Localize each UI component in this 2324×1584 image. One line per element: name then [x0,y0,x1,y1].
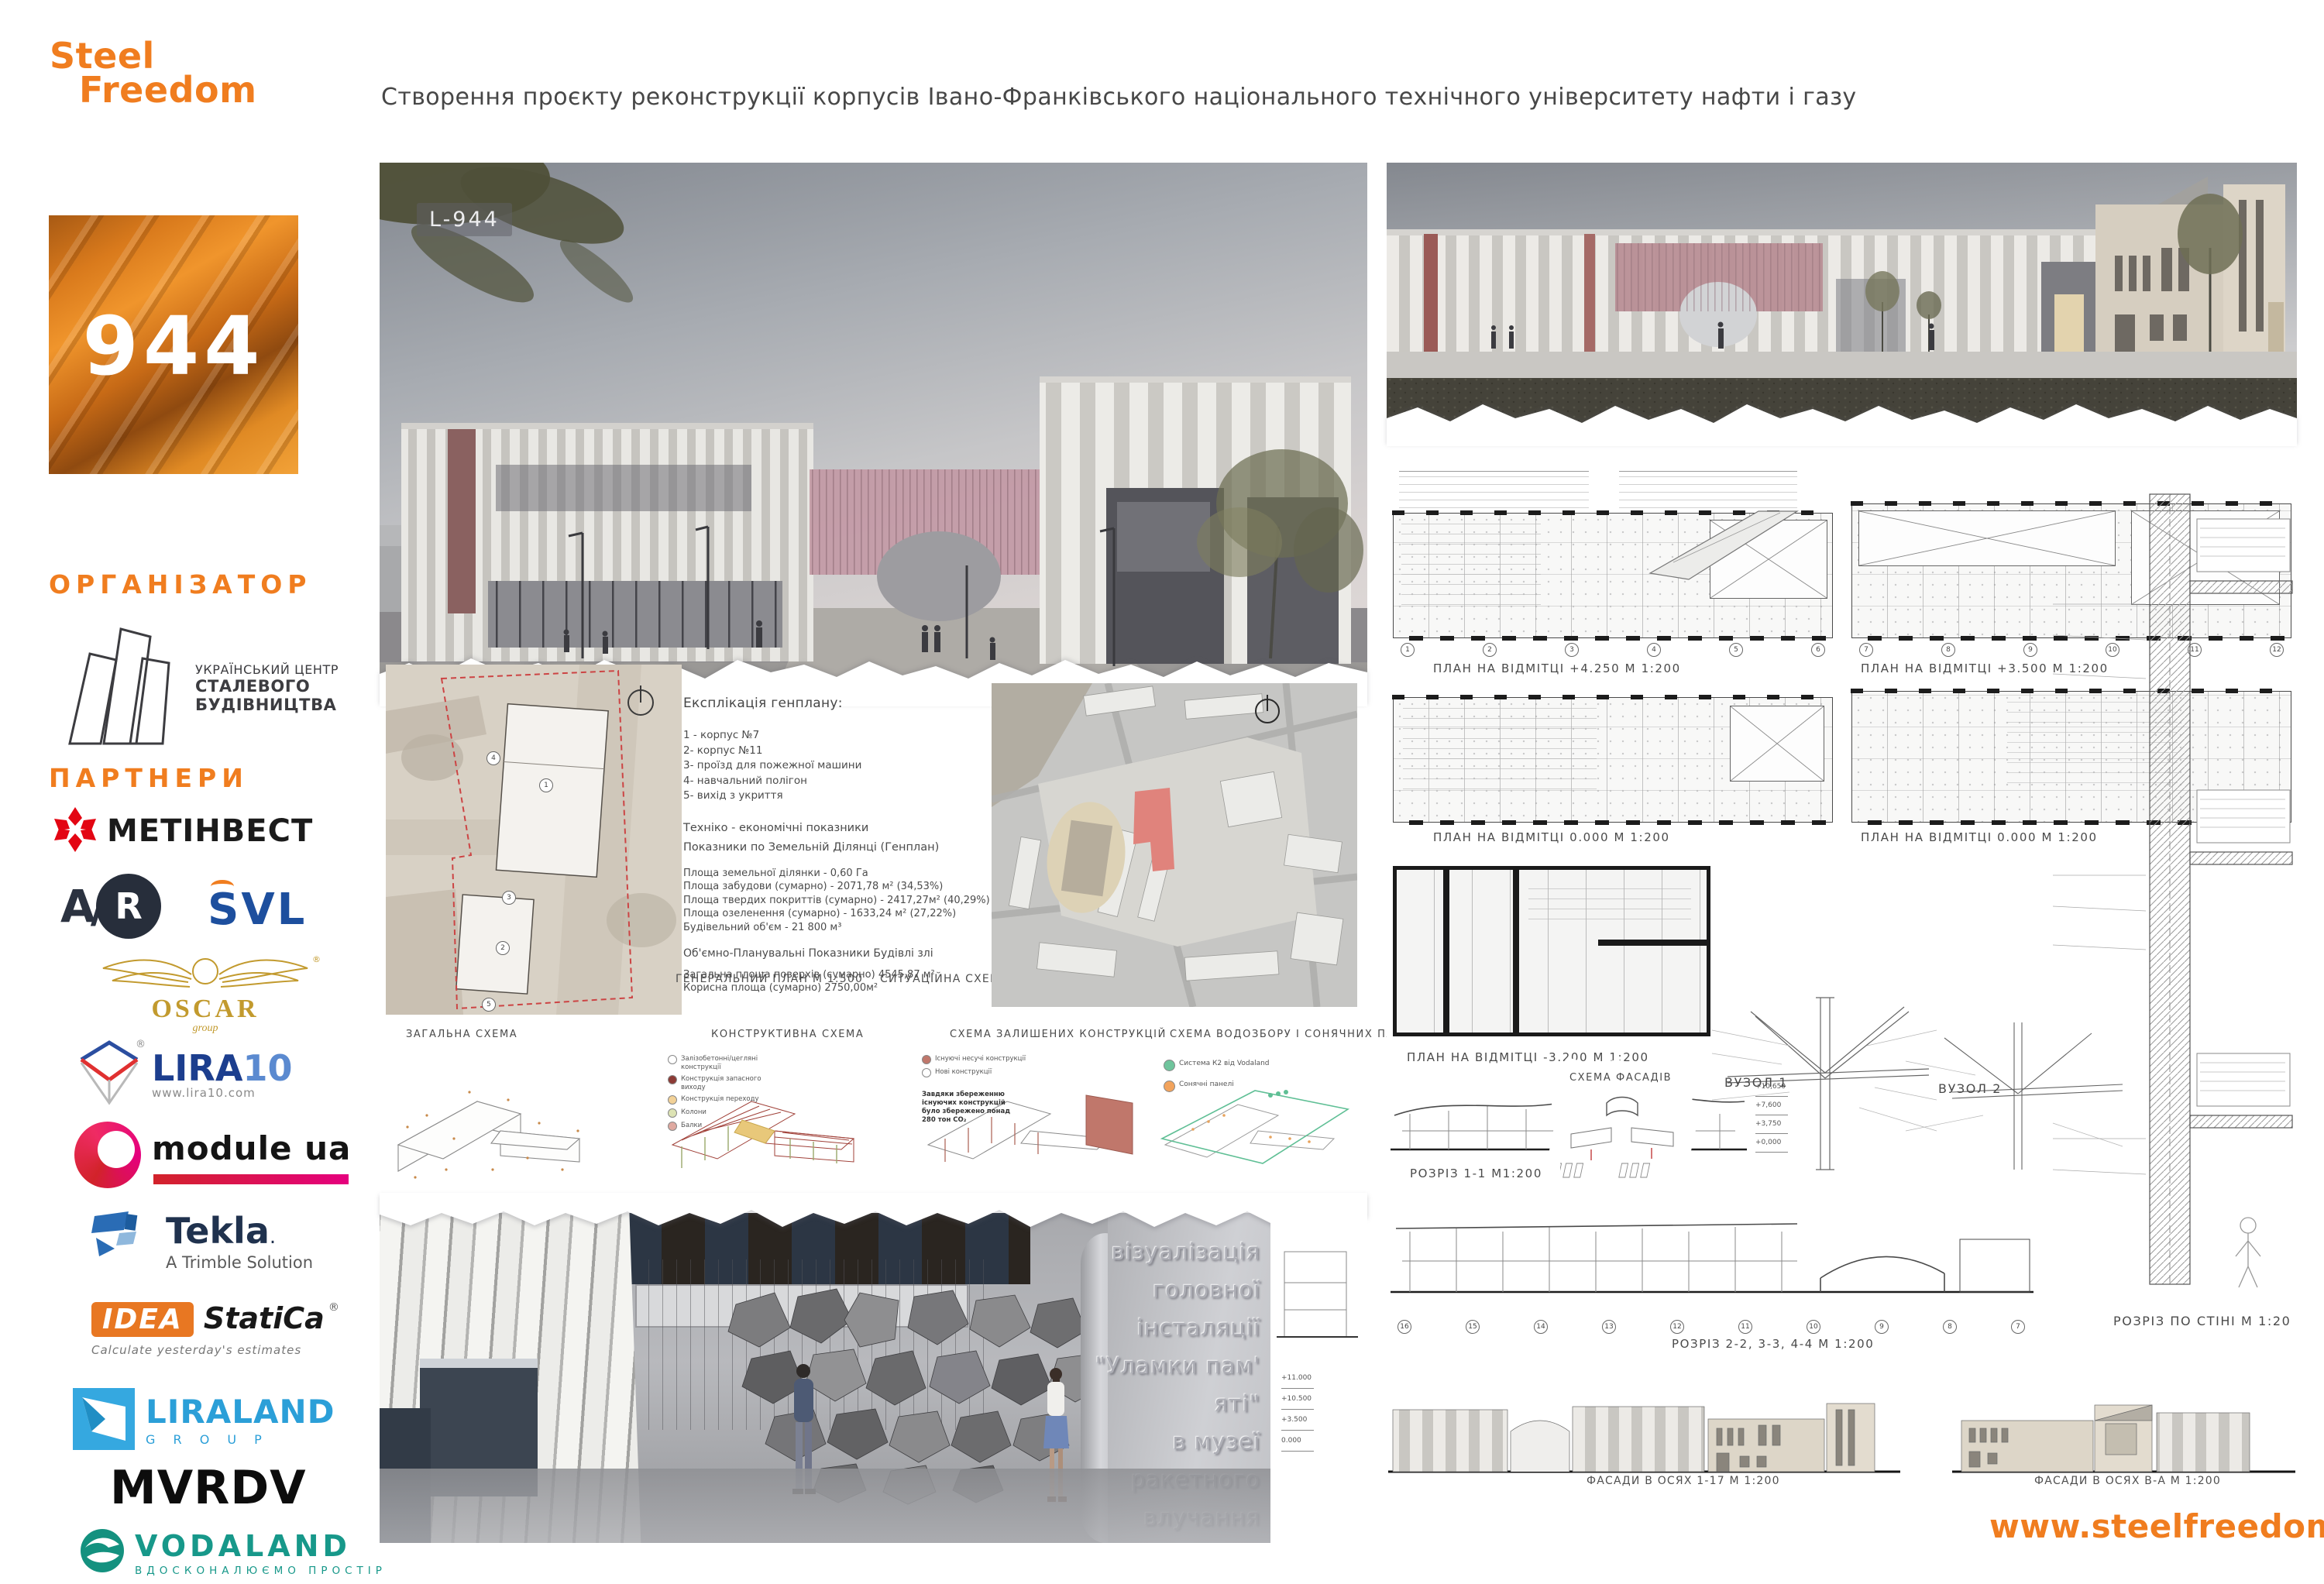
axis-bubble: 4 [1647,643,1661,657]
level-mark: +3.500 [1281,1410,1314,1431]
axis-bubble: 7 [1859,643,1873,657]
oscar-logo: ® OSCAR group [77,954,333,1036]
tekla-sub: A Trimble Solution [166,1253,313,1272]
logo-line-1: Steel [50,39,257,73]
side-strip: +11.000+10.500+3.5000.000 [1270,1213,1367,1543]
facade-1-17-drawing [1387,1393,1902,1484]
axes-row: 123456 [1401,643,1825,657]
vodaland-sub: ВДОСКОНАЛЮЄМО ПРОСТІР [135,1565,387,1577]
co2-note: Завдяки збереженню існуючих конструкцій … [922,1091,1023,1125]
tech-heading: Техніко - економічні показники [683,821,997,837]
display-glass [420,1359,538,1368]
facade-scheme-label: СХЕМА ФАСАДІВ [1569,1072,1672,1084]
liraland-text: LIRALAND [146,1393,335,1431]
mvrdv-logo: MVRDV [110,1461,307,1515]
floor-plan-0000-left [1393,697,1833,823]
avr-logo: A / R [60,874,161,939]
side-section-sketch [1277,1236,1362,1352]
organizer-name-line1: УКРАЇНСЬКИЙ ЦЕНТР [195,662,339,677]
genplan-label: ГЕНЕРАЛЬНИЙ ПЛАН М 1:500 [676,973,863,985]
axis-bubble: 11 [1738,1320,1752,1334]
tech-sub: Показники по Земельній Ділянці (Генплан) [683,840,997,856]
exterior-render: L-944 [380,163,1367,705]
genplan-drawing [386,665,682,1015]
plan-label: ПЛАН НА ВІДМІТЦІ +4.250 М 1:200 [1433,661,1681,675]
axis-bubble: 6 [1811,643,1825,657]
moduleua-text: module ua [152,1129,351,1167]
legend-dot [668,1095,677,1105]
wall-section-label: РОЗРІЗ ПО СТІНІ М 1:20 [2113,1314,2291,1328]
axes-row-section: 16151413121110987 [1397,1320,2025,1334]
section-234-drawing [1387,1193,2037,1317]
tech-metric: Площа твердих покриттів (сумарно) - 2417… [683,894,997,908]
legend-dot [1164,1081,1175,1092]
explication-items: 1 - корпус №72- корпус №113- проїзд для … [683,728,997,804]
scheme1-drawing [384,1046,617,1201]
page-title: Створення проєкту реконструкції корпусів… [381,84,2256,111]
legend-label: Балки [681,1122,702,1130]
legend-constructive: Залізобетонні/цегляні конструкціїКонстру… [668,1055,784,1135]
avr-letter-r: R [96,874,161,939]
moduleua-bar [153,1174,349,1184]
steel-freedom-logo: Steel Freedom [50,39,257,107]
basement-plan [1393,866,1710,1036]
axis-bubble: 10 [1807,1320,1820,1334]
idea-box: IDEA [91,1302,194,1337]
scheme3-title: СХЕМА ЗАЛИШЕНИХ КОНСТРУКЦІЙ [950,1029,1167,1040]
svg-text:®: ® [136,1039,145,1050]
axis-bubble: 12 [1670,1320,1684,1334]
moduleua-icon [74,1122,141,1188]
competition-sheet: Steel Freedom 944 ОРГАНІЗАТОР УКРАЇНСЬКИ… [0,0,2324,1584]
tech-metric: Площа озеленення (сумарно) - 1633,24 м² … [683,907,997,921]
genplan-number: 5 [482,998,496,1012]
board-right: 123456 789101112 ПЛАН НА ВІДМІТЦІ +4.250… [1387,163,2297,1543]
board-left: L-944 [380,163,1367,1543]
caption-line: інсталяції [1088,1309,1260,1347]
legend-dot [922,1068,931,1077]
legend-label: Нові конструкції [935,1068,992,1077]
logo-line-2: Freedom [79,73,257,107]
lira10-logo: LIRA10 www.lira10.com [152,1047,292,1100]
oscar-wings-icon: ® [89,954,321,998]
facade-BA-drawing [1951,1393,2297,1484]
organizer-name-line2: СТАЛЕВОГО [195,677,339,696]
level-mark: +11.000 [1281,1368,1314,1389]
render-tag: L-944 [417,203,512,236]
axis-bubble: 1 [1401,643,1415,657]
ucsb-logo-icon [56,613,187,749]
level-mark: 0.000 [1281,1431,1314,1452]
gallery-link-drawing [1642,496,1828,589]
legend-label: Сонячні панелі [1179,1081,1234,1089]
axis-bubble: 9 [1875,1320,1889,1334]
lira10-icon: ® [74,1036,145,1108]
lira-num: 10 [242,1047,292,1089]
explication-item: 2- корпус №11 [683,744,997,759]
legend-label: Система К2 від Vodaland [1179,1060,1270,1068]
explication-heading: Експлікація генплану: [683,696,997,711]
legend-label: Конструкція переходу [681,1095,759,1104]
liraland-icon [71,1386,136,1452]
node1-label: ВУЗОЛ 1 [1724,1075,1788,1090]
tech-metrics: Площа земельної ділянки - 0,60 ГаПлоща з… [683,867,997,935]
genplan-number: 4 [486,751,500,765]
axis-bubble: 7 [2011,1320,2025,1334]
axis-bubble: 8 [1943,1320,1957,1334]
genplan-number: 2 [496,941,510,955]
caption-line: в музеї [1088,1423,1260,1461]
axis-bubble: 14 [1534,1320,1548,1334]
tekla-text: Tekla [166,1210,270,1252]
legend-dot [922,1055,931,1064]
statica-text: StatiCa [204,1301,325,1335]
entry-number-tile: 944 [49,215,298,474]
idea-sub: Calculate yesterday's estimates [91,1343,339,1357]
node2-label: ВУЗОЛ 2 [1938,1081,2002,1096]
axis-bubble: 8 [1941,643,1955,657]
axis-bubble: 9 [2023,643,2037,657]
moduleua-icon-hole [98,1131,135,1168]
legend-label: Конструкція запасного виходу [681,1075,784,1091]
axis-bubble: 2 [1483,643,1497,657]
vodaland-logo: VODALAND ВДОСКОНАЛЮЄМО ПРОСТІР [135,1529,387,1577]
genplan-number: 1 [539,778,553,792]
plan-label: ПЛАН НА ВІДМІТЦІ 0.000 М 1:200 [1433,830,1670,844]
liraland-sub: G R O U P [146,1432,335,1447]
svg-text:®: ® [312,954,321,964]
legend-water: Система К2 від VodalandСонячні панелі [1164,1060,1270,1101]
legend-remaining: Існуючі несучі конструкціїНові конструкц… [922,1055,1026,1081]
organizer-name: УКРАЇНСЬКИЙ ЦЕНТР СТАЛЕВОГО БУДІВНИЦТВА [195,662,339,714]
scheme1-title: ЗАГАЛЬНА СХЕМА [406,1029,517,1040]
interior-render: візуалізаціяголовноїінсталяції"Уламки па… [380,1213,1270,1543]
facade-scheme-chip: СХЕМА ФАСАДІВ [1549,1058,1697,1190]
legend-dot [668,1075,677,1084]
explication-block: Експлікація генплану: 1 - корпус №72- ко… [683,696,997,995]
tekla-icon [91,1210,155,1261]
legend-label: Існуючі несучі конструкції [935,1055,1026,1063]
explication-item: 3- проїзд для пожежної машини [683,758,997,774]
metinvest-icon [51,806,99,854]
situation-map [992,683,1357,1007]
lira-text: LIRA [152,1047,242,1089]
section-1-1-label: РОЗРІЗ 1-1 М1:200 [1410,1167,1542,1180]
wall-section-drawing [2045,488,2297,1309]
explication-item: 1 - корпус №7 [683,728,997,744]
oscar-text: OSCAR [77,995,333,1024]
level-mark: +10.500 [1281,1389,1314,1410]
partners-heading: ПАРТНЕРИ [49,763,249,793]
genplan-number: 3 [502,891,516,905]
idea-statica-logo: IDEA StatiCa ® Calculate yesterday's est… [91,1301,339,1357]
svl-accent-arc [211,880,234,893]
torn-edge [380,1193,1367,1239]
explication-item: 4- навчальний полігон [683,774,997,789]
svl-logo: SVL [208,885,307,935]
tech-metric: Будівельний об'єм - 21 800 м³ [683,921,997,935]
legend-dot [668,1055,677,1064]
facade-scheme-sketch [1560,1089,1684,1182]
legend-dot [668,1108,677,1118]
facade-1-label: ФАСАДИ В ОСЯХ 1-17 М 1:200 [1587,1475,1780,1487]
oscar-sub: group [77,1022,333,1035]
organizer-name-line3: БУДІВНИЦТВА [195,696,339,714]
axis-bubble: 16 [1397,1320,1411,1334]
explication-item: 5- вихід з укриття [683,789,997,804]
vodaland-text: VODALAND [135,1529,387,1563]
legend-dot [668,1122,677,1131]
volume-heading: Об'ємно-Планувальні Показники Будівлі зл… [683,947,997,962]
axis-bubble: 5 [1729,643,1743,657]
caption-line: "Уламки пам' яті" [1088,1347,1260,1423]
tekla-logo: Tekla. A Trimble Solution [166,1210,313,1272]
organizer-heading: ОРГАНІЗАТОР [49,569,311,600]
section-234-label: РОЗРІЗ 2-2, 3-3, 4-4 М 1:200 [1672,1337,1874,1351]
website-url: www.steelfreedom.ua [1989,1507,2324,1545]
exterior-render-drawing [380,163,1367,705]
axis-bubble: 15 [1466,1320,1480,1334]
legend-dot [1164,1060,1175,1071]
side-levels: +11.000+10.500+3.5000.000 [1281,1368,1314,1452]
tech-metric: Площа земельної ділянки - 0,60 Га [683,867,997,881]
torn-edge [1387,384,2297,446]
facade-2-label: ФАСАДИ В ОСЯХ В-А М 1:200 [2034,1475,2221,1487]
axis-bubble: 3 [1565,643,1579,657]
idea-reg: ® [328,1301,339,1314]
tekla-dot: . [270,1225,276,1249]
liraland-logo: LIRALAND G R O U P [146,1393,335,1447]
legend-label: Залізобетонні/цегляні конструкції [681,1055,784,1071]
legend-label: Колони [681,1108,706,1117]
axis-bubble: 13 [1602,1320,1616,1334]
interior-floor [380,1469,1270,1543]
vodaland-icon [79,1527,125,1574]
scheme2-title: КОНСТРУКТИВНА СХЕМА [711,1029,864,1040]
tech-metric: Площа забудови (сумарно) - 2071,78 м² (3… [683,880,997,894]
metinvest-logo: МЕТІНВЕСТ [107,813,313,849]
entry-number: 944 [49,299,298,393]
caption-line: головної [1088,1271,1260,1309]
